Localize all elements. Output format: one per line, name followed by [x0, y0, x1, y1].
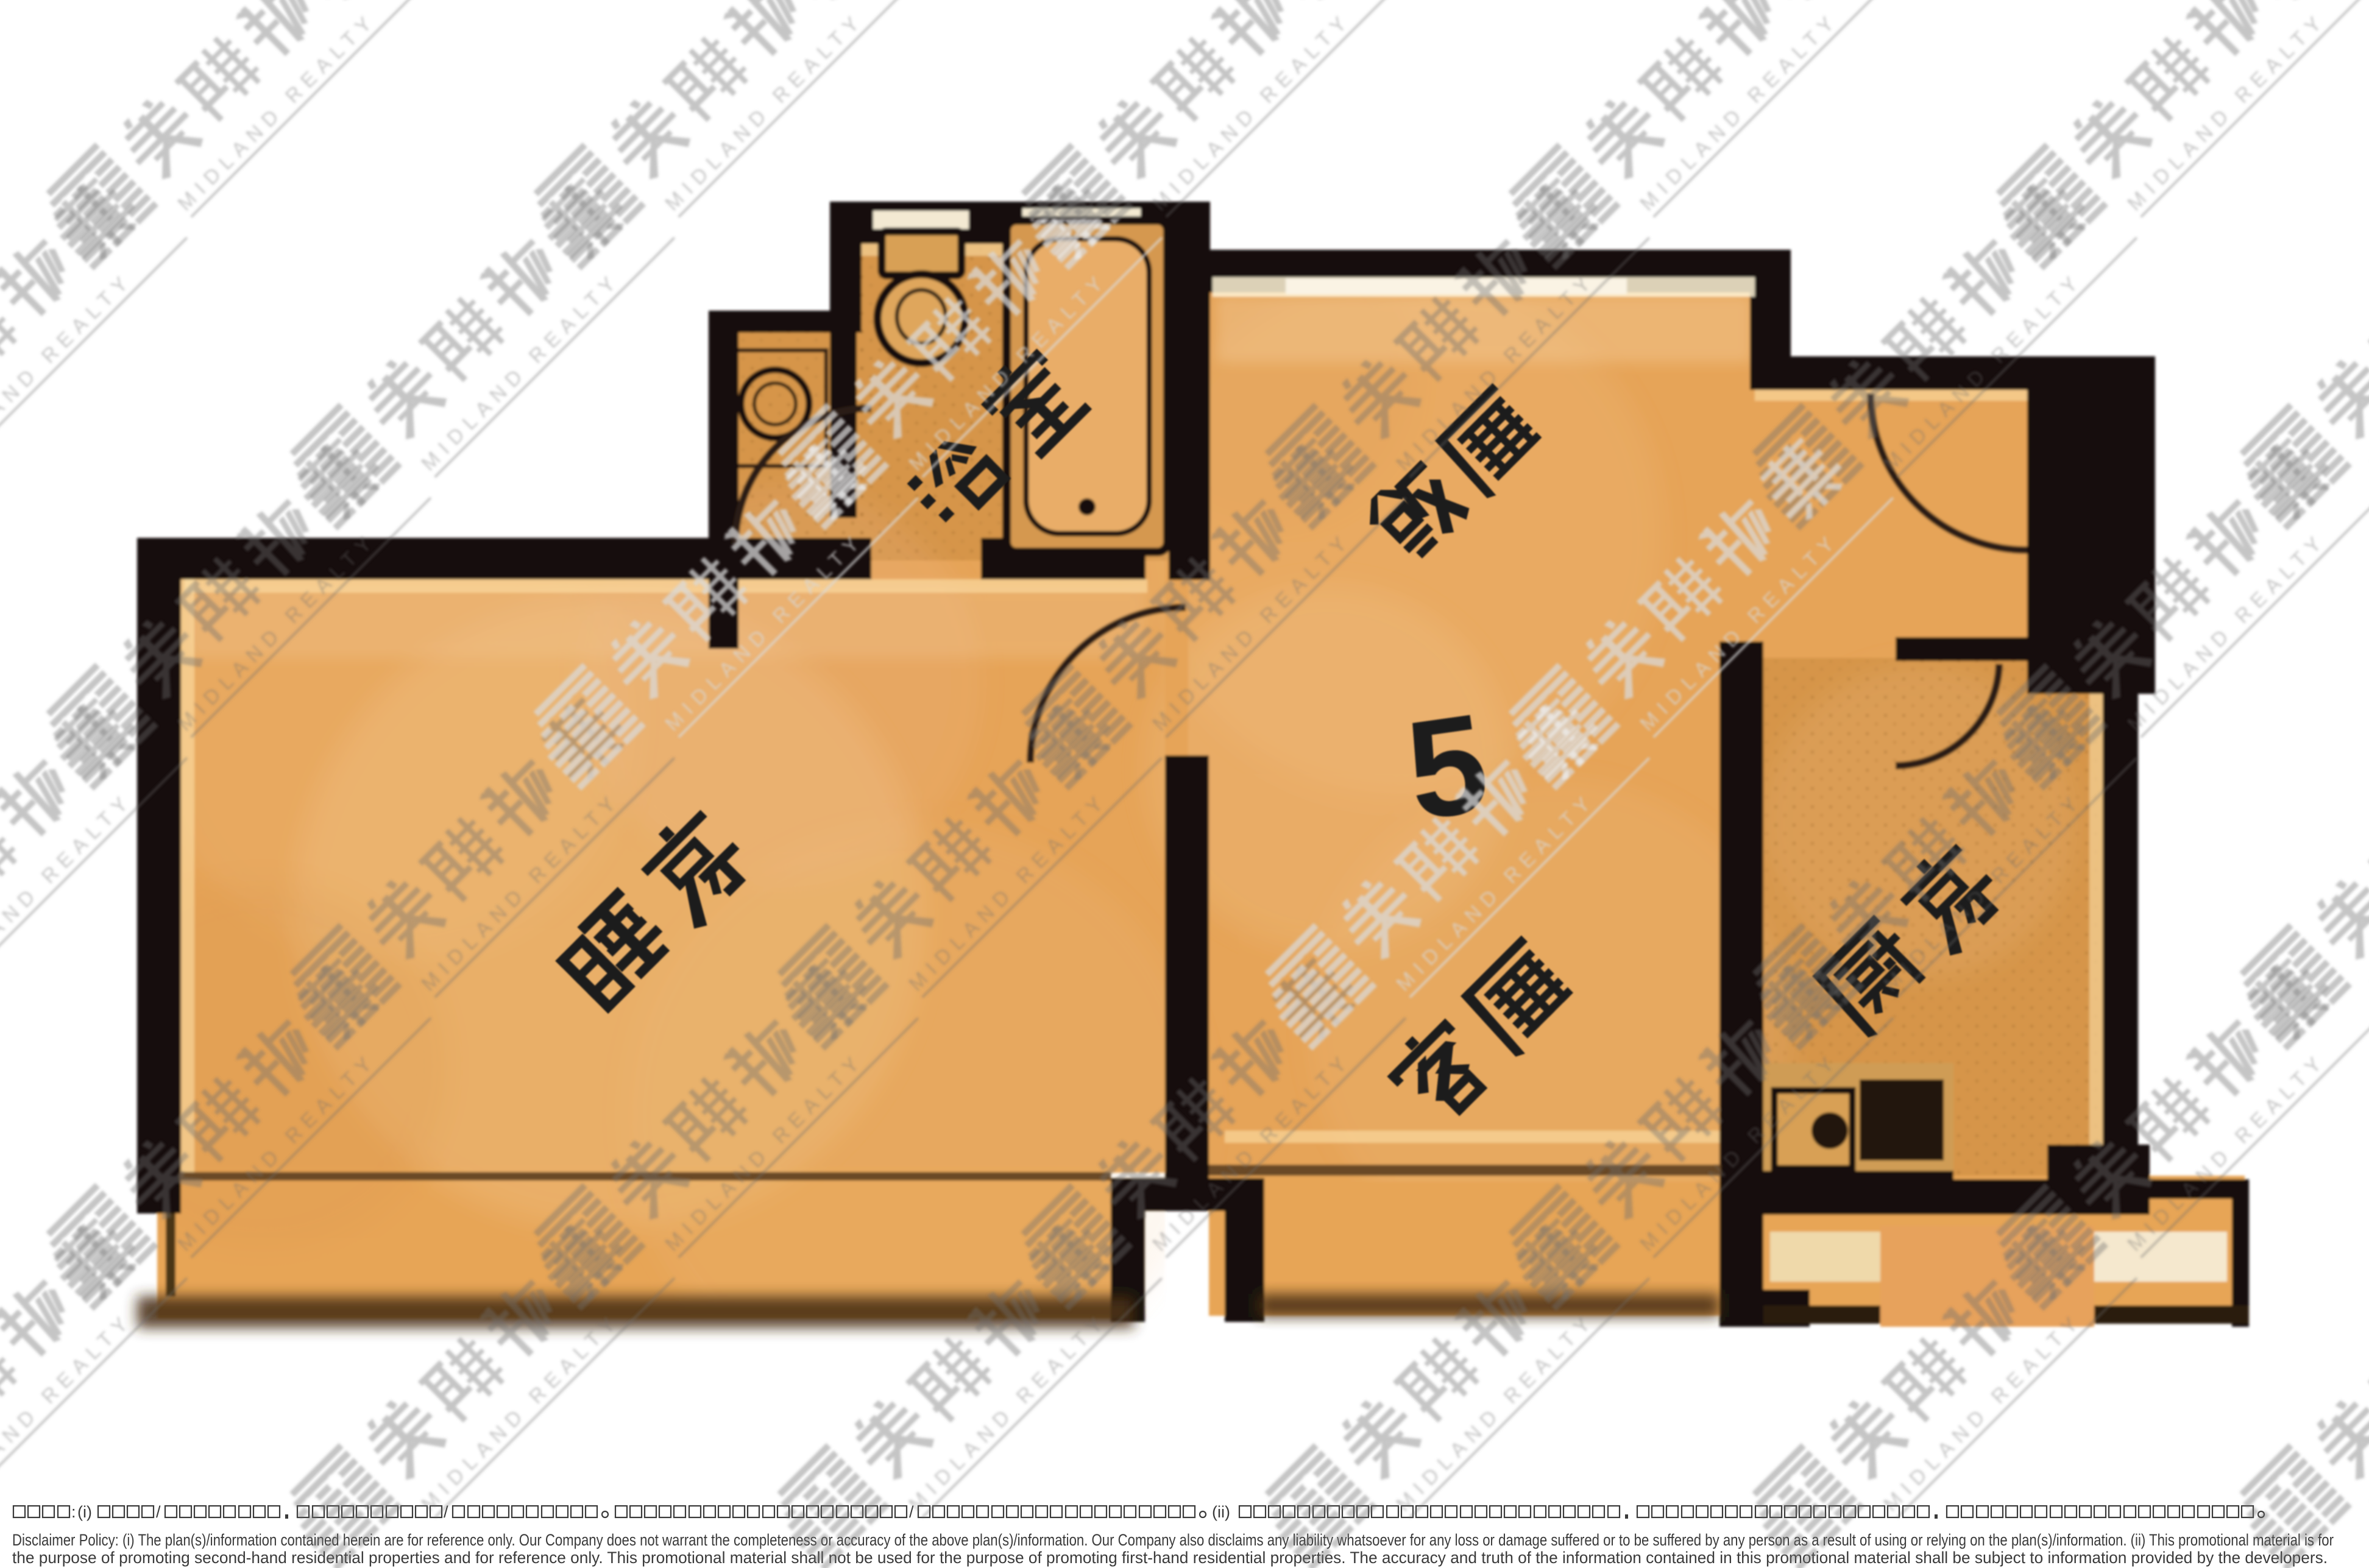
svg-text::: :: [71, 1503, 76, 1521]
svg-text:(ii): (ii): [1212, 1503, 1230, 1521]
svg-text:/: /: [156, 1503, 161, 1521]
svg-text:the purpose of promoting secon: the purpose of promoting second-hand res…: [12, 1549, 2328, 1567]
svg-text:(i): (i): [77, 1503, 92, 1521]
